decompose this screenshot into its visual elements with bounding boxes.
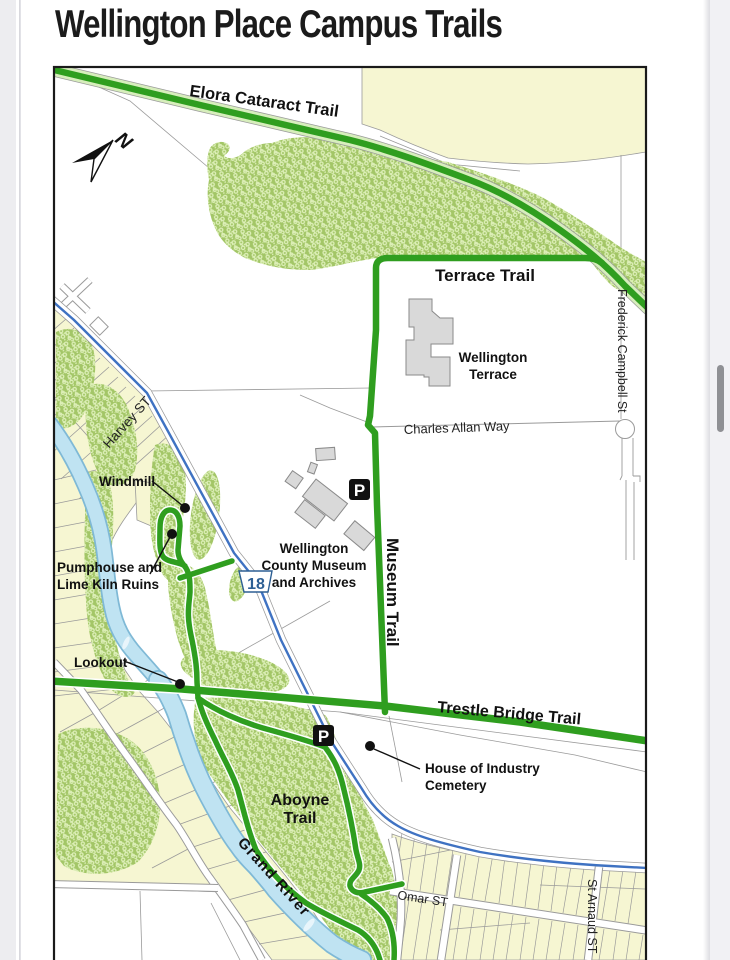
svg-text:Lookout: Lookout	[74, 655, 128, 670]
svg-text:Wellington: Wellington	[459, 350, 528, 365]
svg-text:Museum Trail: Museum Trail	[383, 538, 402, 647]
svg-text:Wellington: Wellington	[280, 541, 349, 556]
svg-text:Terrace: Terrace	[469, 367, 517, 382]
svg-text:and Archives: and Archives	[272, 575, 356, 590]
svg-text:Frederick Campbell St: Frederick Campbell St	[615, 289, 629, 413]
svg-text:P: P	[354, 481, 365, 500]
svg-text:Terrace Trail: Terrace Trail	[435, 266, 535, 285]
svg-text:Cemetery: Cemetery	[425, 778, 487, 793]
svg-text:Aboyne: Aboyne	[271, 792, 330, 809]
svg-text:18: 18	[247, 576, 265, 593]
svg-text:St Arnaud ST: St Arnaud ST	[585, 879, 599, 954]
svg-text:County Museum: County Museum	[261, 558, 366, 573]
svg-text:Pumphouse and: Pumphouse and	[57, 560, 162, 575]
svg-text:House of Industry: House of Industry	[425, 761, 540, 776]
svg-text:P: P	[318, 727, 329, 746]
svg-text:Windmill: Windmill	[99, 474, 155, 489]
svg-text:Lime Kiln Ruins: Lime Kiln Ruins	[57, 577, 159, 592]
svg-text:Trail: Trail	[284, 810, 317, 827]
